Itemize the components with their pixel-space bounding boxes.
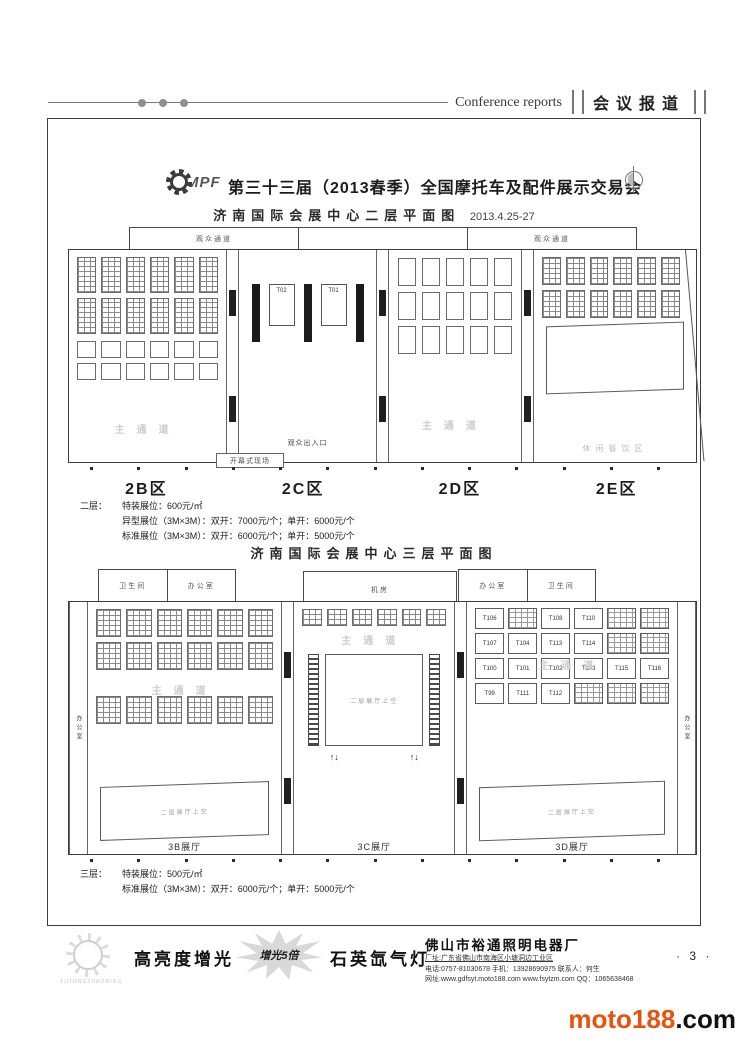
booth-cell xyxy=(607,608,636,629)
booth-cell: T114 xyxy=(574,633,603,654)
floor3-top-left-rooms: 卫生间办公室 xyxy=(98,569,236,603)
advertiser-logo: YUTONGZHAOMING xyxy=(60,933,116,985)
company-line: 电话:0757-81030678 手机：13928690975 联系人：何生 xyxy=(425,965,675,976)
page-number: · 3 · xyxy=(676,949,712,963)
booth-cell xyxy=(640,633,669,654)
office-strip-right: 办公室 xyxy=(677,602,696,854)
gear-icon xyxy=(166,169,192,195)
booth-cell: T108 xyxy=(541,608,570,629)
void-label: 二层展厅上空 xyxy=(161,806,209,817)
hall-3c-label: 3C展厅 xyxy=(294,840,454,853)
floor2-pricing: 二层： 特装展位：600元/㎡异型展位（3M×3M）：双开：7000元/个；单开… xyxy=(80,499,355,544)
company-line: 厂址:广东省佛山市南海区小塘洞边工业区 xyxy=(425,954,675,965)
escalator-arrow: ↑↓ xyxy=(330,752,339,762)
header-dots xyxy=(138,99,188,107)
dark-booth xyxy=(356,284,364,342)
void-area: 二层展厅上空 xyxy=(100,781,269,841)
floor2-subtitle: 济南国际会展中心二层平面图 2013.4.25-27 xyxy=(48,205,700,224)
special-booths: T02 T01 xyxy=(239,250,376,342)
dark-booth xyxy=(304,284,312,342)
office-label: 办公室 xyxy=(682,715,691,742)
magazine-page: Conference reports 会议报道 MPF 第三十三届（2013春季… xyxy=(0,0,744,1052)
company-name: 佛山市裕通照明电器厂 xyxy=(425,934,675,954)
floor2-price-label: 二层： xyxy=(80,499,122,544)
hall-2e: 休闲餐饮区 xyxy=(534,250,696,462)
booth-cell xyxy=(508,608,537,629)
booth-block-grid xyxy=(88,602,281,670)
price-line: 标准展位（3M×3M）：双开：6000元/个；单开：5000元/个 xyxy=(122,882,355,897)
logo-caption: YUTONGZHAOMING xyxy=(60,979,116,985)
floor2-subtitle-text: 济南国际会展中心二层平面图 xyxy=(213,208,460,223)
stair-core xyxy=(376,250,389,462)
hall-3b-label: 3B展厅 xyxy=(88,840,281,853)
double-bar-icon xyxy=(694,90,706,114)
void-label: 二层展厅上空 xyxy=(548,806,596,817)
company-lines: 厂址:广东省佛山市南海区小塘洞边工业区电话:0757-81030678 手机：1… xyxy=(425,954,675,986)
floor3-price-lines: 特装展位：500元/㎡标准展位（3M×3M）：双开：6000元/个；单开：500… xyxy=(122,867,355,897)
stair-core xyxy=(521,250,534,462)
floor3-pricing: 三层： 特装展位：500元/㎡标准展位（3M×3M）：双开：6000元/个；单开… xyxy=(80,867,355,897)
entrance-gap xyxy=(299,228,468,250)
booth-cell xyxy=(607,683,636,704)
room-label: 办公室 xyxy=(168,570,236,602)
void-area: 二层展厅上空 xyxy=(479,781,665,841)
ad-slogan-left: 高亮度增光 xyxy=(134,945,234,970)
booth-t02: T02 xyxy=(269,284,295,326)
price-line: 特装展位：600元/㎡ xyxy=(122,499,355,514)
sun-lamp-icon xyxy=(66,933,110,977)
booth-cell: T111 xyxy=(508,683,537,704)
void-area: 二层展厅上空 xyxy=(325,654,423,746)
price-line: 标准展位（3M×3M）：双开：6000元/个；单开：5000元/个 xyxy=(122,529,355,544)
main-aisle-label: 主通道 xyxy=(467,657,677,672)
stair-core xyxy=(281,602,294,854)
office-strip-left: 办公室 xyxy=(69,602,88,854)
stair-core xyxy=(454,602,467,854)
floor3-plan: 办公室 主通道 二层展厅上空 3B展厅 主通道 二层展厅上空 xyxy=(68,601,697,855)
header-rule xyxy=(48,102,448,103)
company-info: 佛山市裕通照明电器厂 厂址:广东省佛山市南海区小塘洞边工业区电话:0757-81… xyxy=(425,934,675,986)
site-watermark: moto188.com xyxy=(568,1004,736,1035)
booth-cell: T104 xyxy=(508,633,537,654)
column-dots xyxy=(90,859,660,862)
starburst-text: 增光5倍 xyxy=(259,947,298,963)
room-label: 办公室 xyxy=(459,570,528,602)
main-aisle-label: 主通道 xyxy=(69,421,226,436)
escalator xyxy=(429,654,440,746)
corridor-left-label: 观众通道 xyxy=(130,228,299,250)
booth-row-grid xyxy=(294,602,454,626)
hall-2b: 主通道 xyxy=(69,250,226,462)
main-aisle-label: 主通道 xyxy=(294,632,454,647)
escalator xyxy=(308,654,319,746)
price-line: 异型展位（3M×3M）：双开：7000元/个；单开：6000元/个 xyxy=(122,514,355,529)
booth-cell: T106 xyxy=(475,608,504,629)
opening-ceremony-label: 开幕式现场 xyxy=(216,453,284,468)
booth-block-grid xyxy=(69,250,226,334)
watermark-suffix: .com xyxy=(675,1004,736,1034)
double-bar-icon xyxy=(572,90,584,114)
center-void-block: 二层展厅上空 xyxy=(308,654,440,746)
booth-block-grid xyxy=(88,670,281,724)
floor2-top-corridor: 观众通道 观众通道 xyxy=(129,227,637,251)
hall-3c: 主通道 二层展厅上空 ↑↓ ↑↓ 3C展厅 xyxy=(294,602,454,854)
booth-cell xyxy=(640,608,669,629)
booth-cell xyxy=(640,683,669,704)
booth-cell xyxy=(574,683,603,704)
column-dots xyxy=(90,467,660,470)
zone-label: 2D区 xyxy=(382,475,539,499)
hall-2c: T02 T01 观众出入口 xyxy=(239,250,376,462)
floor3-subtitle: 济南国际会展中心三层平面图 xyxy=(48,543,700,562)
watermark-brand: moto188 xyxy=(568,1004,675,1034)
booth-cell: T107 xyxy=(475,633,504,654)
room-label: 卫生间 xyxy=(99,570,168,602)
corridor-right-label: 观众通道 xyxy=(468,228,636,250)
section-label-en: Conference reports xyxy=(440,95,562,111)
escalator-arrow: ↑↓ xyxy=(410,752,419,762)
hall-3b: 主通道 二层展厅上空 3B展厅 xyxy=(88,602,281,854)
floor2-zone-labels: 2B区2C区2D区2E区 xyxy=(68,475,695,499)
booth-row-grid xyxy=(69,334,226,380)
floor3-price-label: 三层： xyxy=(80,867,122,897)
section-label-zh: 会议报道 xyxy=(593,90,685,114)
zone-label: 2B区 xyxy=(68,475,225,499)
floor2-plan: 主通道 T02 T01 观众出入口 主通道 xyxy=(68,249,697,463)
booth-cell: T99 xyxy=(475,683,504,704)
exhibition-date: 2013.4.25-27 xyxy=(470,211,535,223)
hall-3d: T106T108T110T107T104T113T114T100T101T102… xyxy=(467,602,677,854)
escalator-arrows: ↑↓ ↑↓ xyxy=(294,752,454,762)
audience-gate-label: 观众出入口 xyxy=(239,438,376,448)
void-label: 二层展厅上空 xyxy=(350,696,398,705)
stair-core xyxy=(226,250,239,462)
main-aisle-label: 主通道 xyxy=(389,417,521,432)
leisure-dining-label: 休闲餐饮区 xyxy=(534,443,696,454)
dark-booth xyxy=(252,284,260,342)
floor2-price-lines: 特装展位：600元/㎡异型展位（3M×3M）：双开：7000元/个；单开：600… xyxy=(122,499,355,544)
zone-label: 2E区 xyxy=(538,475,695,499)
booth-block-grid xyxy=(534,250,696,318)
main-aisle-label: 主通道 xyxy=(88,682,281,697)
zone-label: 2C区 xyxy=(225,475,382,499)
hall-3d-label: 3D展厅 xyxy=(467,840,677,853)
price-line: 特装展位：500元/㎡ xyxy=(122,867,355,882)
booth-t01: T01 xyxy=(321,284,347,326)
section-label-zh-wrap: 会议报道 xyxy=(572,90,706,114)
booth-cell: T112 xyxy=(541,683,570,704)
floor3-top-right-rooms: 办公室卫生间 xyxy=(458,569,596,603)
booth-cell: T113 xyxy=(541,633,570,654)
north-compass-icon xyxy=(625,171,643,189)
numbered-booths: T106T108T110T107T104T113T114T100T101T102… xyxy=(467,602,677,704)
starburst-badge: 增光5倍 xyxy=(236,930,322,980)
exhibition-title: 第三十三届（2013春季）全国摩托车及配件展示交易会 xyxy=(228,174,642,198)
booth-cell: T110 xyxy=(574,608,603,629)
booth-cell xyxy=(607,633,636,654)
document-frame: MPF 第三十三届（2013春季）全国摩托车及配件展示交易会 济南国际会展中心二… xyxy=(47,118,701,926)
company-line: 网址:www.gdfsyt.moto188.com www.fsytzm.com… xyxy=(425,975,675,986)
cmpf-logo: MPF xyxy=(166,169,221,195)
office-label: 办公室 xyxy=(74,715,83,742)
hall-2d: 主通道 xyxy=(389,250,521,462)
booth-box-grid xyxy=(389,250,521,354)
ad-slogan-right: 石英氙气灯 xyxy=(330,945,430,970)
room-label: 卫生间 xyxy=(528,570,596,602)
void-area xyxy=(546,322,684,395)
